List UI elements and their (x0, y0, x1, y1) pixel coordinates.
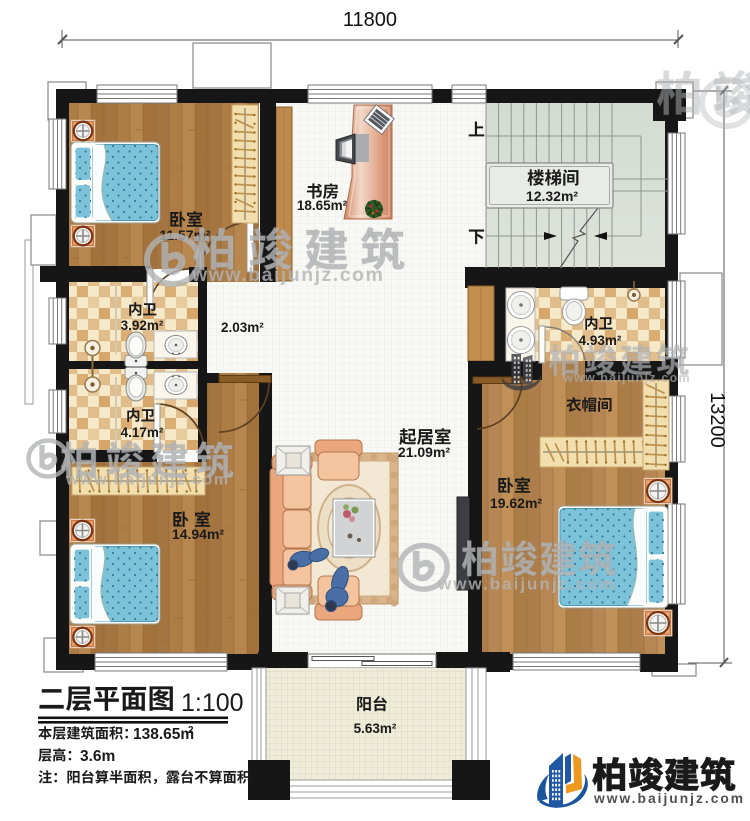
svg-text:2: 2 (188, 725, 194, 736)
svg-text:4.17m²: 4.17m² (121, 425, 164, 440)
svg-text:5.63m²: 5.63m² (354, 721, 397, 736)
svg-text:138.65m: 138.65m (133, 726, 194, 743)
svg-text:www.baijunjz.com: www.baijunjz.com (593, 791, 745, 806)
svg-text:14.94m²: 14.94m² (172, 526, 224, 542)
svg-text:18.65m²: 18.65m² (297, 198, 348, 213)
svg-text:2.03m²: 2.03m² (221, 320, 264, 335)
svg-text:11800: 11800 (343, 9, 397, 31)
svg-text:www.baijunjz.com: www.baijunjz.com (191, 264, 384, 286)
svg-text:12.32m²: 12.32m² (526, 188, 578, 204)
svg-text:www.baijunjz.com: www.baijunjz.com (562, 371, 691, 385)
svg-text:13200: 13200 (706, 392, 728, 448)
svg-text:1:100: 1:100 (181, 689, 244, 717)
svg-text:3.92m²: 3.92m² (121, 318, 164, 333)
svg-text:4.93m²: 4.93m² (579, 333, 622, 348)
svg-text:21.09m²: 21.09m² (398, 444, 450, 460)
svg-text:3.6m: 3.6m (80, 748, 115, 765)
svg-text:www.baijunjz.com: www.baijunjz.com (437, 574, 617, 593)
svg-text:www.baijunjz.com: www.baijunjz.com (65, 471, 230, 488)
svg-text:19.62m²: 19.62m² (490, 495, 542, 511)
